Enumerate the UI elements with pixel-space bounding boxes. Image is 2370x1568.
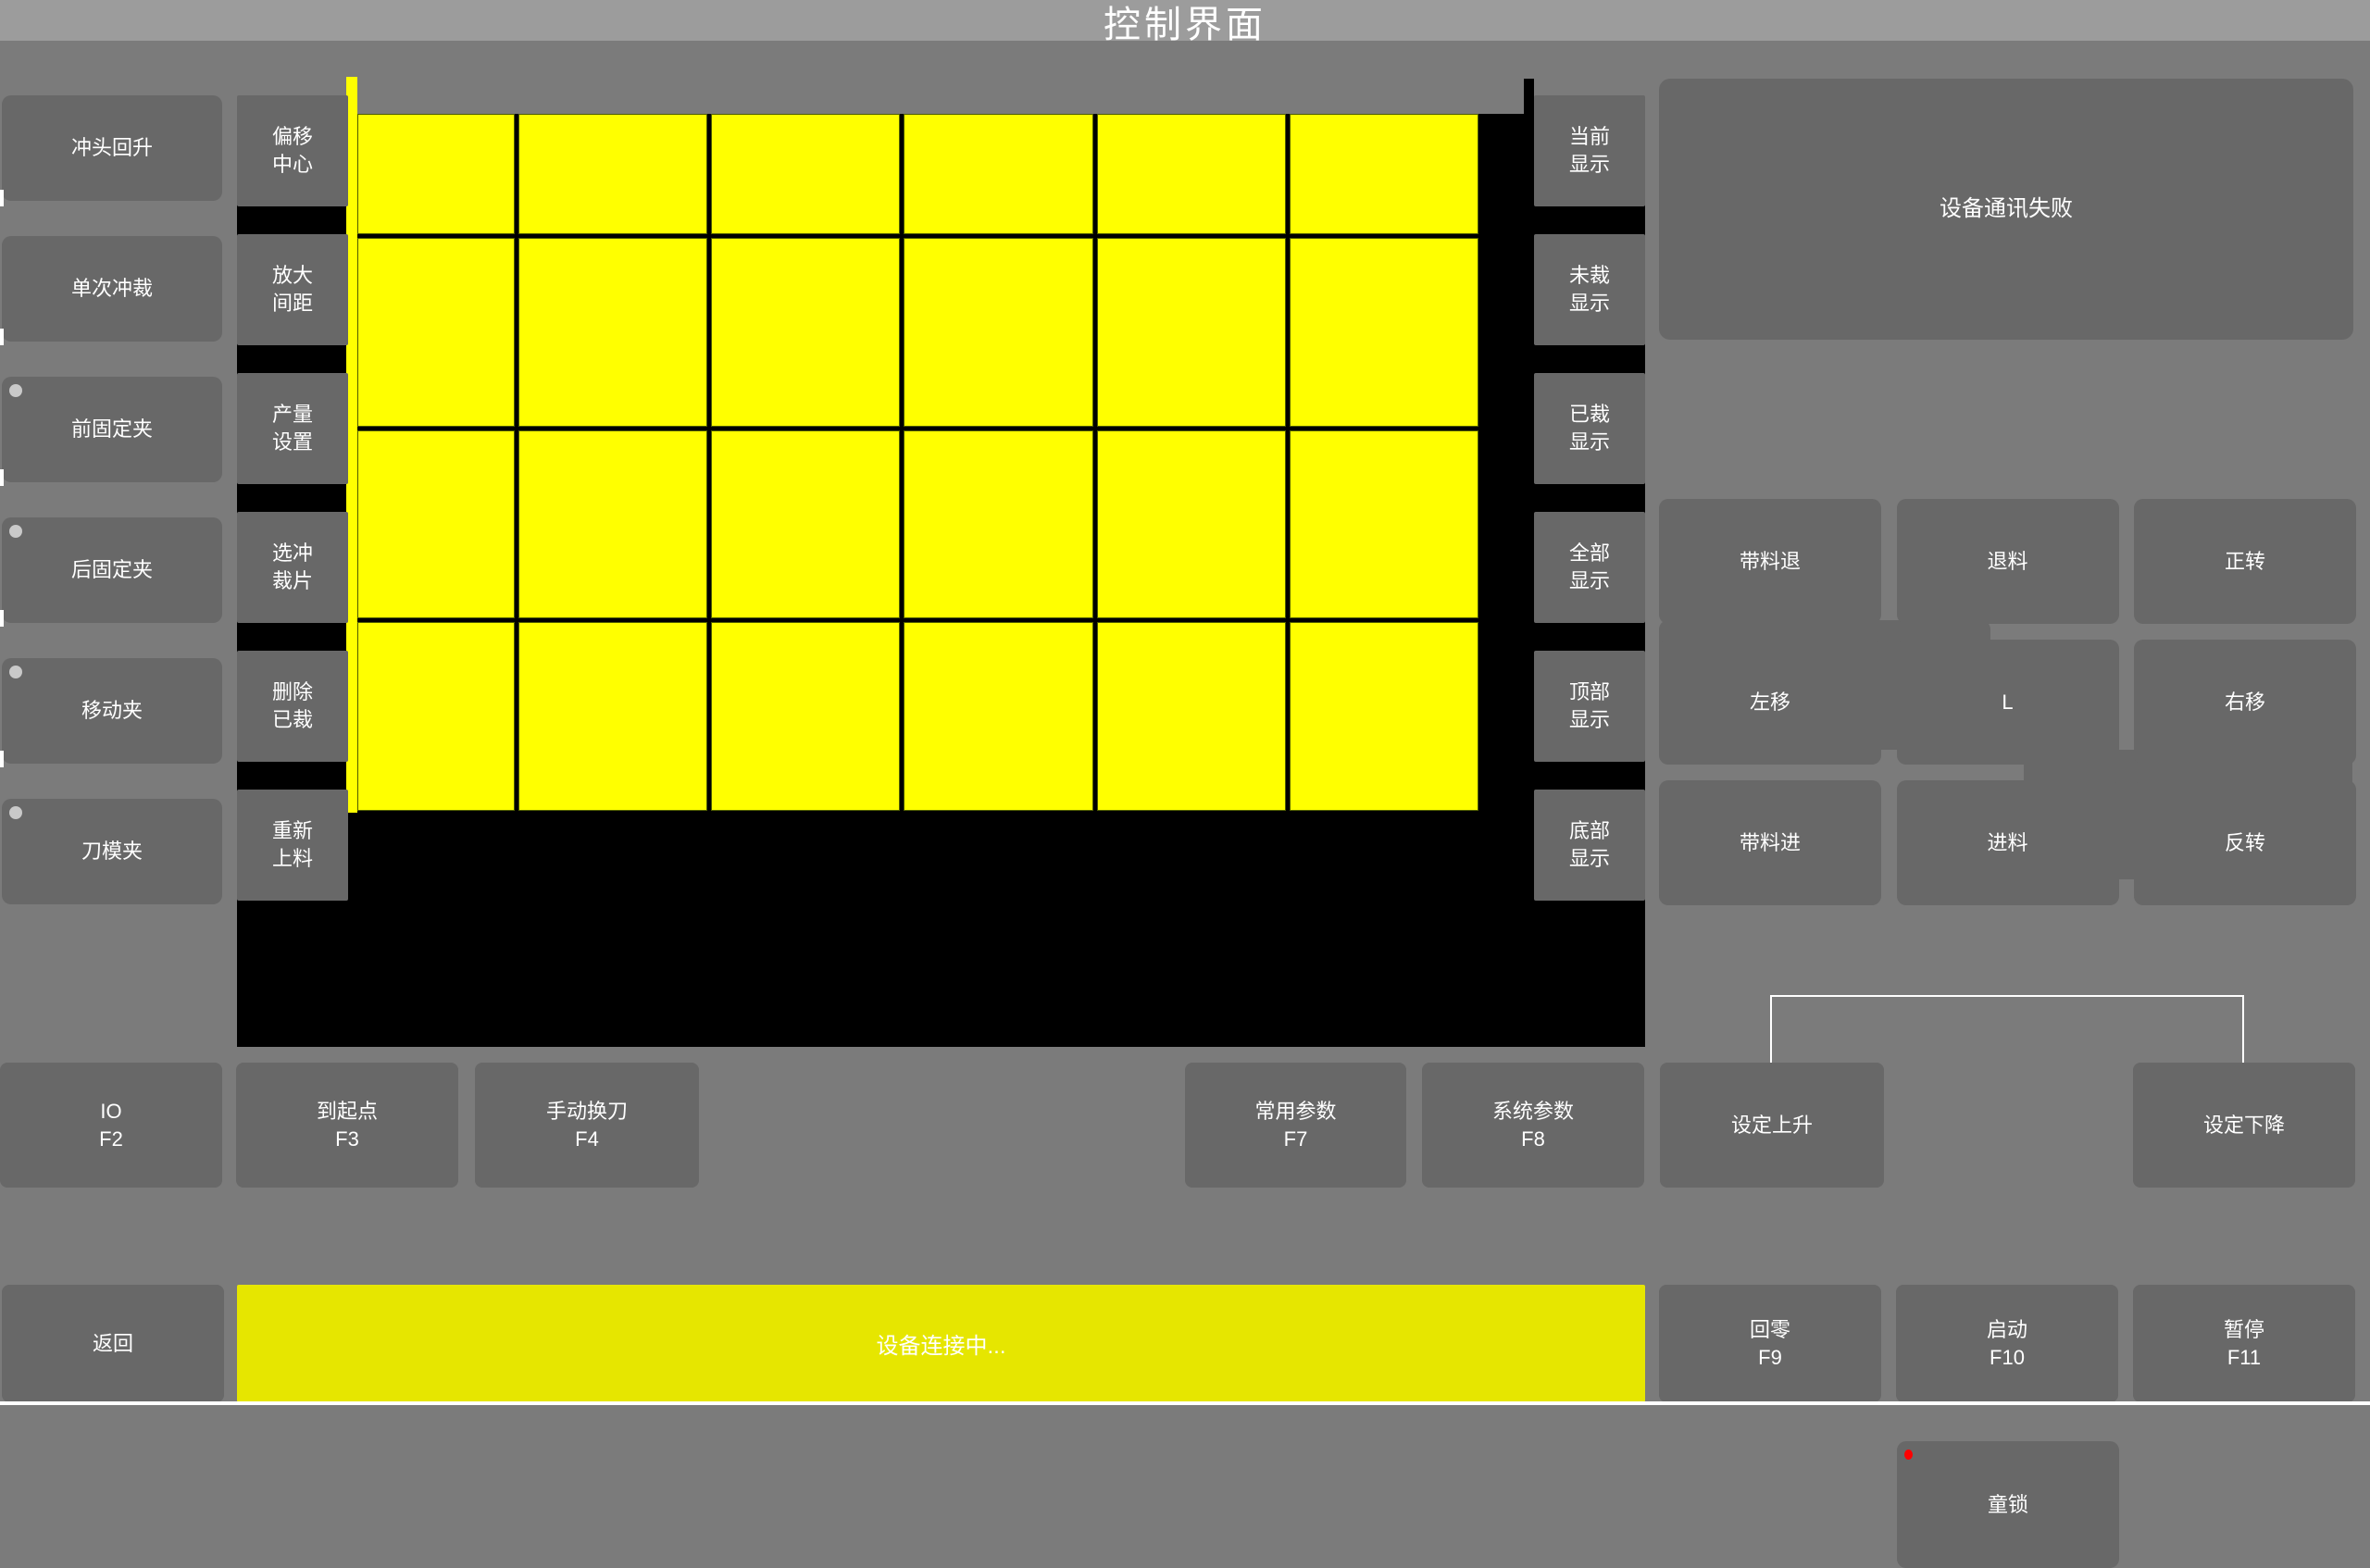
button-label: 产量 xyxy=(272,401,313,429)
grid-cell[interactable] xyxy=(1290,114,1478,234)
fkey-label: F7 xyxy=(1284,1126,1308,1153)
button-label: 童锁 xyxy=(1988,1491,2028,1519)
show-all-button[interactable]: 全部显示 xyxy=(1534,512,1645,623)
page-title: 控制界面 xyxy=(0,2,2370,48)
grid-cell[interactable] xyxy=(1290,622,1478,811)
button-label: 刀模夹 xyxy=(81,838,143,865)
show-uncut-button[interactable]: 未裁显示 xyxy=(1534,234,1645,345)
button-label: 顶部 xyxy=(1569,678,1610,706)
forward-rotation-button[interactable]: 正转 xyxy=(2134,499,2356,624)
child-lock-indicator-dot xyxy=(1904,1450,1913,1460)
moving-clamp-button[interactable]: 移动夹 xyxy=(2,658,222,764)
grid-cell[interactable] xyxy=(518,238,707,427)
indicator-dot xyxy=(9,666,22,678)
show-cut-button[interactable]: 已裁显示 xyxy=(1534,373,1645,484)
button-label: 常用参数 xyxy=(1254,1098,1336,1126)
set-lower-button[interactable]: 设定下降 xyxy=(2133,1063,2355,1188)
edge-mark xyxy=(0,610,4,627)
grid-cell[interactable] xyxy=(1097,622,1286,811)
grid-cell[interactable] xyxy=(711,238,900,427)
button-label: 系统参数 xyxy=(1492,1098,1574,1126)
edge-mark xyxy=(0,751,4,767)
button-label: 重新 xyxy=(272,817,313,845)
grid-cell[interactable] xyxy=(357,238,515,427)
feed-material-button[interactable]: 进料 xyxy=(1897,780,2119,905)
back-button[interactable]: 返回 xyxy=(2,1285,224,1402)
reverse-rotation-button[interactable]: 反转 xyxy=(2134,780,2356,905)
button-label: 当前 xyxy=(1569,123,1610,151)
grid-cell[interactable] xyxy=(904,430,1092,619)
grid-cell[interactable] xyxy=(1097,430,1286,619)
button-label: 未裁 xyxy=(1569,262,1610,290)
indicator-dot xyxy=(9,384,22,397)
display-mode-column: 当前显示 未裁显示 已裁显示 全部显示 顶部显示 底部显示 xyxy=(1534,95,1645,901)
die-clamp-button[interactable]: 刀模夹 xyxy=(2,799,222,904)
button-label: 显示 xyxy=(1569,567,1610,595)
status-text: 设备连接中... xyxy=(876,1327,1005,1360)
grid-cell[interactable] xyxy=(1290,430,1478,619)
button-label: 退料 xyxy=(1987,548,2027,576)
fkey-label: F11 xyxy=(2227,1344,2261,1372)
grid-cell[interactable] xyxy=(904,238,1092,427)
button-label: 前固定夹 xyxy=(71,416,153,443)
button-label: 单次冲裁 xyxy=(71,275,153,303)
grid-cell[interactable] xyxy=(518,114,707,234)
window-bottom-edge xyxy=(0,1401,2370,1405)
left-button-column: 冲头回升 单次冲裁 前固定夹 后固定夹 移动夹 刀模夹 xyxy=(2,95,222,904)
button-label: 手动换刀 xyxy=(546,1098,628,1126)
edge-mark xyxy=(0,329,4,345)
grid-cell[interactable] xyxy=(518,430,707,619)
button-label: 上料 xyxy=(272,845,313,873)
start-f10-button[interactable]: 启动F10 xyxy=(1896,1285,2118,1402)
enlarge-spacing-button[interactable]: 放大间距 xyxy=(237,234,348,345)
tool-button-column: 偏移中心 放大间距 产量设置 选冲裁片 删除已裁 重新上料 xyxy=(237,95,348,901)
home-f9-button[interactable]: 回零F9 xyxy=(1659,1285,1881,1402)
grid-cell[interactable] xyxy=(711,114,900,234)
cutting-canvas xyxy=(237,114,1645,1047)
button-label: 左移 xyxy=(1750,689,1790,716)
fkey-label: F4 xyxy=(575,1126,599,1153)
button-label: 设定下降 xyxy=(2203,1112,2285,1139)
button-label: 已裁 xyxy=(272,706,313,734)
manual-tool-change-f4-button[interactable]: 手动换刀F4 xyxy=(475,1063,699,1188)
button-label: 暂停 xyxy=(2224,1316,2264,1344)
button-label: 返回 xyxy=(93,1330,133,1358)
punch-raise-button[interactable]: 冲头回升 xyxy=(2,95,222,201)
grid-cell[interactable] xyxy=(518,622,707,811)
retract-material-button[interactable]: 退料 xyxy=(1897,499,2119,624)
fkey-label: F9 xyxy=(1758,1344,1782,1372)
button-label: 裁片 xyxy=(272,567,313,595)
button-label: 回零 xyxy=(1750,1316,1790,1344)
front-clamp-button[interactable]: 前固定夹 xyxy=(2,377,222,482)
grid-cell[interactable] xyxy=(1097,114,1286,234)
show-bottom-button[interactable]: 底部显示 xyxy=(1534,790,1645,901)
set-rise-button[interactable]: 设定上升 xyxy=(1660,1063,1884,1188)
grid-cell[interactable] xyxy=(711,430,900,619)
show-top-button[interactable]: 顶部显示 xyxy=(1534,651,1645,762)
cut-grid xyxy=(357,114,1478,811)
pause-f11-button[interactable]: 暂停F11 xyxy=(2133,1285,2355,1402)
button-label: 中心 xyxy=(272,151,313,179)
single-punch-button[interactable]: 单次冲裁 xyxy=(2,236,222,342)
common-params-f7-button[interactable]: 常用参数F7 xyxy=(1185,1063,1406,1188)
grid-cell[interactable] xyxy=(357,622,515,811)
connection-status-bar: 设备连接中... xyxy=(237,1285,1645,1402)
button-label: 已裁 xyxy=(1569,401,1610,429)
edge-mark xyxy=(0,469,4,486)
button-label: 设定上升 xyxy=(1731,1112,1813,1139)
button-label: 删除 xyxy=(272,678,313,706)
button-label: 间距 xyxy=(272,290,313,317)
child-lock-connector-lines xyxy=(1770,995,2244,1063)
child-lock-button[interactable]: 童锁 xyxy=(1897,1441,2119,1568)
button-label: 带料进 xyxy=(1740,829,1801,857)
button-label: 启动 xyxy=(1987,1316,2027,1344)
button-label: 显示 xyxy=(1569,429,1610,456)
reload-material-button[interactable]: 重新上料 xyxy=(237,790,348,901)
move-left-button[interactable]: 左移 xyxy=(1659,640,1881,765)
rear-clamp-button[interactable]: 后固定夹 xyxy=(2,517,222,623)
button-label: 反转 xyxy=(2225,829,2265,857)
feed-forward-with-material-button[interactable]: 带料进 xyxy=(1659,780,1881,905)
indicator-dot xyxy=(9,525,22,538)
button-label: 设置 xyxy=(272,429,313,456)
button-label: 显示 xyxy=(1569,151,1610,179)
button-label: 冲头回升 xyxy=(71,134,153,162)
offset-center-button[interactable]: 偏移中心 xyxy=(237,95,348,206)
show-current-button[interactable]: 当前显示 xyxy=(1534,95,1645,206)
status-text: 设备通讯失败 xyxy=(1940,195,2073,223)
output-settings-button[interactable]: 产量设置 xyxy=(237,373,348,484)
button-label: 底部 xyxy=(1569,817,1610,845)
l-button[interactable]: L xyxy=(1897,640,2119,765)
device-status-message: 设备通讯失败 xyxy=(1659,79,2353,340)
indicator-dot xyxy=(9,806,22,819)
delete-cut-button[interactable]: 删除已裁 xyxy=(237,651,348,762)
button-label: 全部 xyxy=(1569,540,1610,567)
button-label: 进料 xyxy=(1987,829,2027,857)
grid-cell[interactable] xyxy=(904,114,1092,234)
fkey-label: F3 xyxy=(335,1126,359,1153)
io-f2-button[interactable]: IOF2 xyxy=(0,1063,222,1188)
system-params-f8-button[interactable]: 系统参数F8 xyxy=(1422,1063,1644,1188)
feed-back-with-material-button[interactable]: 带料退 xyxy=(1659,499,1881,624)
button-label: 后固定夹 xyxy=(71,556,153,584)
button-label: 带料退 xyxy=(1740,548,1801,576)
button-label: 放大 xyxy=(272,262,313,290)
grid-cell[interactable] xyxy=(1097,238,1286,427)
fkey-label: F2 xyxy=(99,1126,123,1153)
grid-cell[interactable] xyxy=(711,622,900,811)
button-label: 右移 xyxy=(2225,689,2265,716)
button-label: 显示 xyxy=(1569,706,1610,734)
grid-cell[interactable] xyxy=(904,622,1092,811)
go-to-origin-f3-button[interactable]: 到起点F3 xyxy=(236,1063,458,1188)
grid-cell[interactable] xyxy=(357,114,515,234)
button-label: 偏移 xyxy=(272,123,313,151)
button-label: IO xyxy=(100,1098,121,1126)
button-label: 到起点 xyxy=(317,1098,378,1126)
move-right-button[interactable]: 右移 xyxy=(2134,640,2356,765)
canvas-top-notch xyxy=(1524,79,1534,114)
button-label: 选冲 xyxy=(272,540,313,567)
button-label: 正转 xyxy=(2225,548,2265,576)
button-label: 显示 xyxy=(1569,845,1610,873)
jog-control-grid: 带料退 退料 正转 左移 L 右移 带料进 进料 反转 xyxy=(1659,499,2356,905)
grid-cell[interactable] xyxy=(1290,238,1478,427)
fkey-label: F8 xyxy=(1521,1126,1545,1153)
edge-mark xyxy=(0,190,4,206)
button-label: L xyxy=(2002,689,2013,716)
fkey-label: F10 xyxy=(1990,1344,2025,1372)
button-label: 显示 xyxy=(1569,290,1610,317)
grid-cell[interactable] xyxy=(357,430,515,619)
select-piece-button[interactable]: 选冲裁片 xyxy=(237,512,348,623)
button-label: 移动夹 xyxy=(81,697,143,725)
